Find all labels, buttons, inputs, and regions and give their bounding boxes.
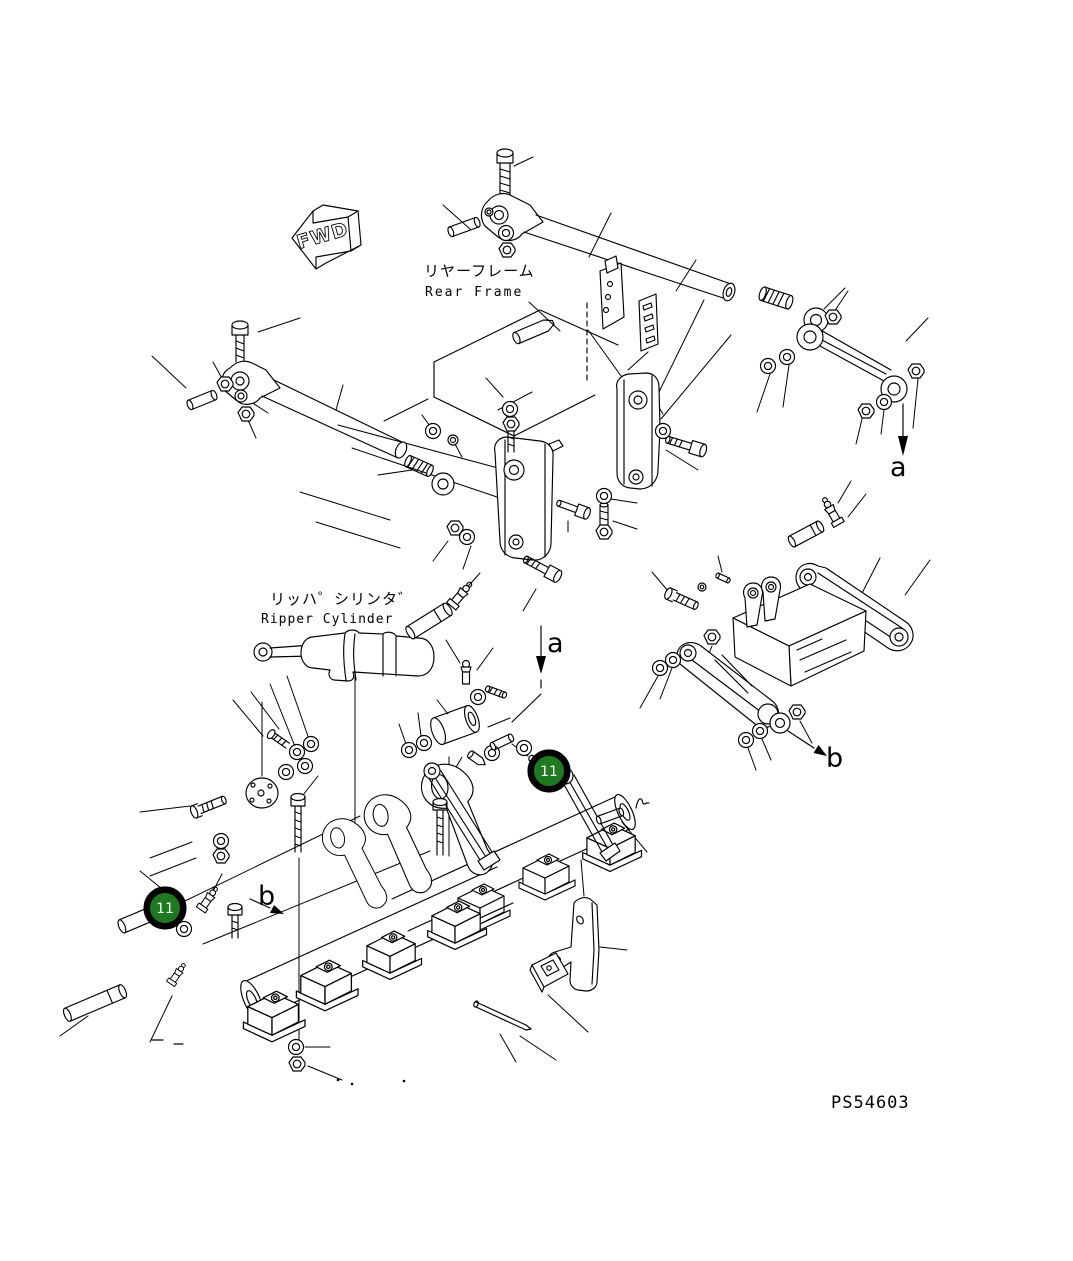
ripper-cylinder-label-jp: リッハ゜シリンタ゛ [270,590,414,608]
section-arrow-a-mid [536,656,546,674]
center-bracket-plates [447,373,708,584]
long-pin [473,1000,531,1030]
section-marker-b-left: b [258,881,275,912]
ripper-cylinder-label-en: Ripper Cylinder [261,612,393,627]
support-arm-weldment [653,495,914,747]
rear-frame-label-jp: リヤーフレーム [424,262,535,280]
hook-mark [636,799,649,808]
left-tie-rod [186,321,458,495]
ripper-cylinder [254,630,434,681]
callout-11-left[interactable]: 11 [144,887,186,929]
section-marker-a-mid: a [547,628,564,659]
top-tie-rod [447,149,828,332]
exploded-parts-drawing: FWD a a b b リヤーフレーム Rear Frame リッハ゜シリンタ゛… [0,0,1073,1261]
rear-frame-label-en: Rear Frame [425,285,523,300]
callout-11-right[interactable]: 11 [528,750,570,792]
right-link-rod [761,310,925,418]
round-plate [246,778,278,808]
pin [447,217,481,238]
parts-diagram-page: FWD a a b b リヤーフレーム Rear Frame リッハ゜シリンタ゛… [0,0,1073,1261]
fwd-direction-arrow: FWD [292,205,361,269]
section-marker-b-right: b [826,743,843,774]
callout-number: 11 [540,764,558,780]
hose [787,520,825,548]
dash-marks [152,1040,183,1044]
drawing-number: PS54603 [831,1093,910,1113]
section-arrow-b-right [814,745,828,756]
callout-number: 11 [156,901,174,917]
section-marker-a-top: a [890,452,907,483]
